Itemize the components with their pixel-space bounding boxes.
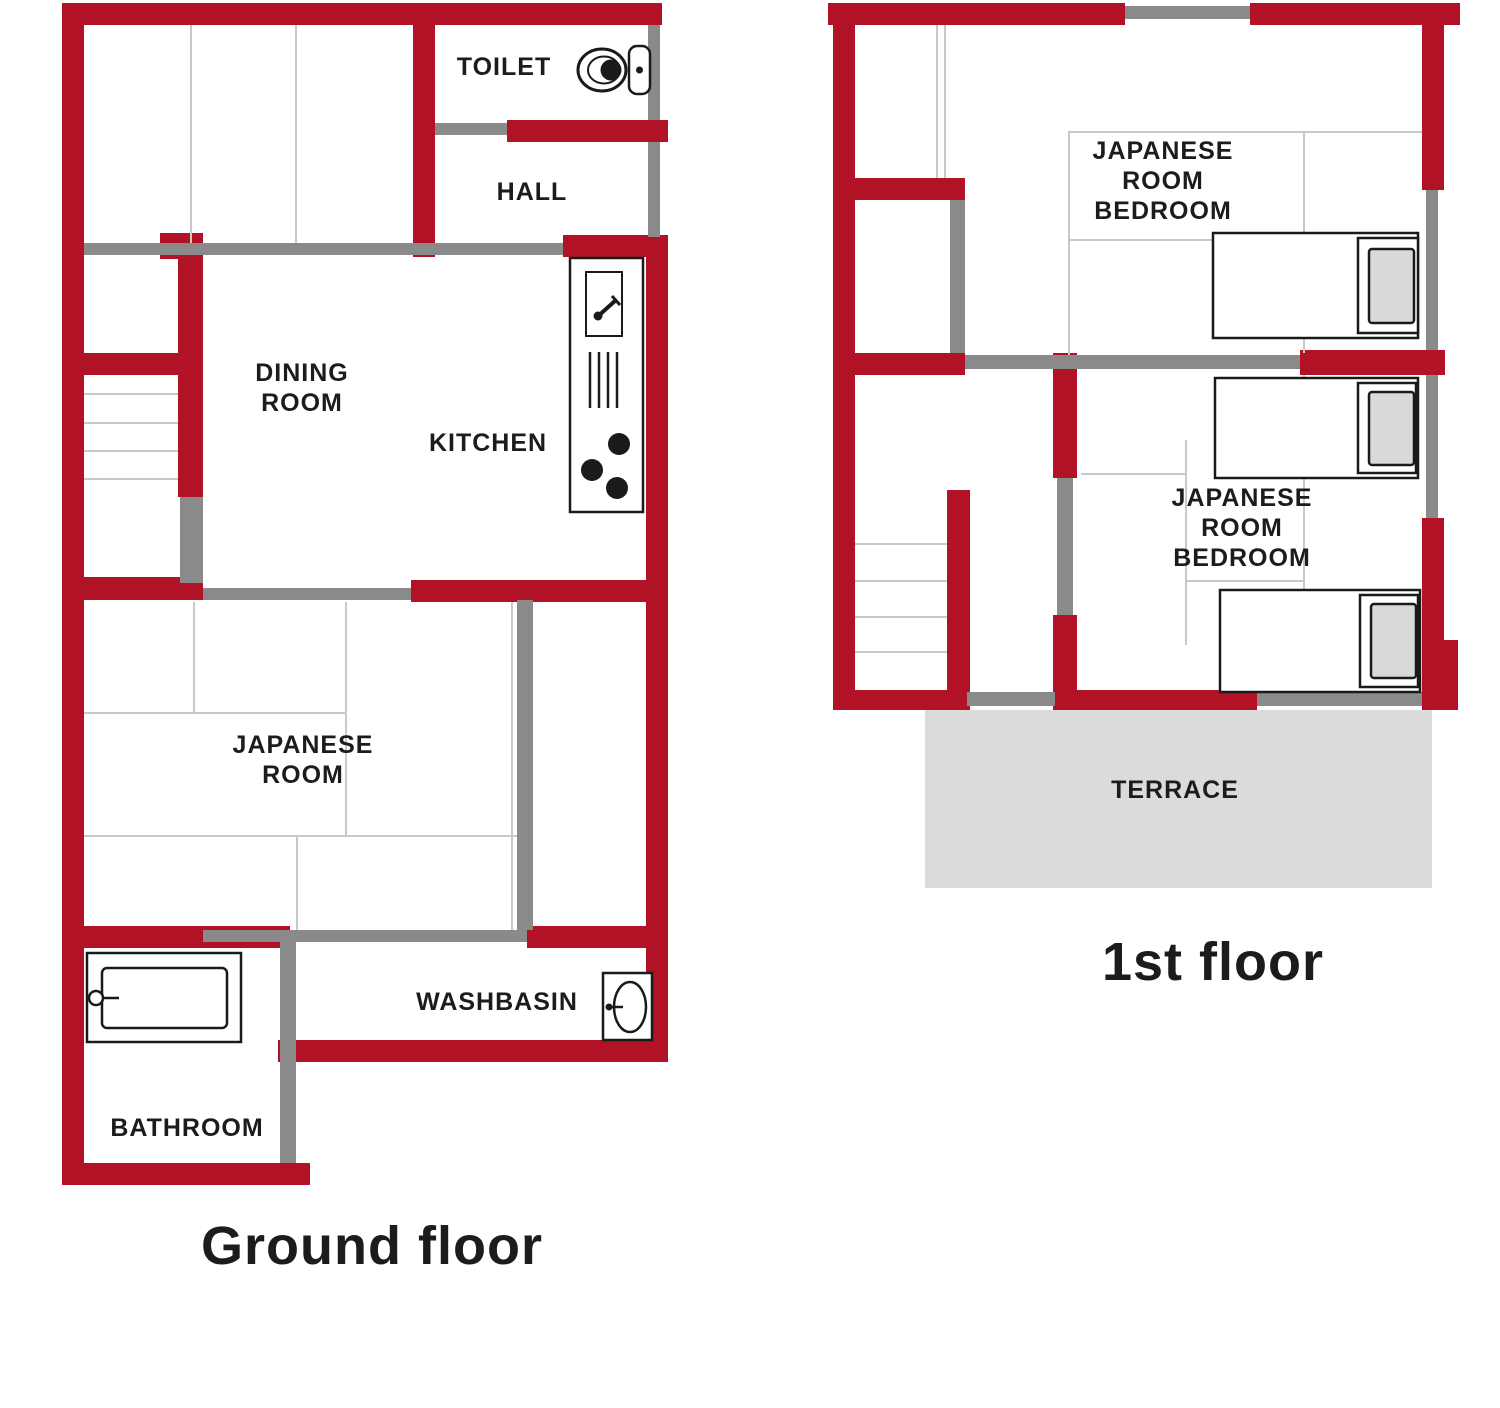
wall-segment	[178, 237, 203, 497]
partition-segment	[1057, 478, 1073, 615]
room-label-hall: HALL	[497, 177, 568, 207]
partition-segment	[203, 588, 411, 600]
stair-tread	[855, 580, 947, 582]
wall-segment	[828, 3, 1125, 25]
tatami-line	[296, 837, 298, 930]
wall-segment	[413, 25, 435, 257]
bed-icon	[1213, 376, 1421, 481]
stair-tread	[84, 450, 178, 452]
washbasin-icon	[601, 971, 655, 1043]
wall-segment	[833, 353, 965, 375]
partition-segment	[965, 355, 1300, 369]
room-label-bedroom-top: JAPANESE ROOM BEDROOM	[1093, 136, 1234, 226]
room-label-terrace: TERRACE	[1111, 775, 1239, 805]
bathtub-icon	[85, 951, 245, 1046]
partition-segment	[950, 200, 965, 353]
stair-tread	[855, 616, 947, 618]
tatami-line	[295, 25, 297, 243]
room-label-bedroom-bottom: JAPANESE ROOM BEDROOM	[1172, 483, 1313, 573]
stair-tread	[855, 651, 947, 653]
wall-segment	[278, 1040, 668, 1062]
partition-segment	[517, 600, 533, 930]
stair-tread	[84, 393, 178, 395]
room-label-dining-room: DINING ROOM	[255, 358, 349, 418]
tatami-line	[190, 25, 192, 243]
wall-segment	[62, 3, 662, 25]
toilet-icon	[575, 42, 653, 98]
room-label-japanese-room: JAPANESE ROOM	[233, 730, 374, 790]
stair-tread	[84, 478, 178, 480]
stair-tread	[84, 422, 178, 424]
stair-tread	[855, 543, 947, 545]
wall-segment	[833, 178, 965, 200]
wall-segment	[833, 690, 970, 710]
ground-floor-caption: Ground floor	[201, 1215, 543, 1277]
window-segment	[1426, 375, 1438, 518]
window-segment	[648, 142, 660, 237]
partition-segment	[280, 942, 296, 1163]
room-label-kitchen: KITCHEN	[429, 428, 547, 458]
wall-segment	[1300, 350, 1445, 375]
tatami-line	[345, 602, 347, 835]
wall-segment	[411, 580, 668, 602]
tatami-line	[1185, 580, 1303, 582]
tatami-line	[84, 835, 517, 837]
bed-icon	[1211, 231, 1421, 341]
room-label-bathroom: BATHROOM	[110, 1113, 263, 1143]
window-segment	[1125, 6, 1250, 19]
wall-segment	[1438, 640, 1458, 710]
window-segment	[1426, 190, 1438, 350]
partition-segment	[84, 243, 563, 255]
room-label-washbasin: WASHBASIN	[416, 987, 578, 1017]
tatami-line	[1068, 239, 1213, 241]
kitchen-counter-icon	[568, 256, 646, 516]
wall-segment	[527, 926, 668, 948]
wall-segment	[947, 490, 970, 710]
floorplan-canvas: TOILET HALL DINING ROOM KITCHEN JAPANESE…	[0, 0, 1500, 1408]
wall-segment	[62, 1163, 310, 1185]
wall-segment	[1422, 3, 1444, 190]
tatami-line	[511, 602, 513, 930]
partition-segment	[967, 692, 1055, 706]
tatami-line	[1081, 473, 1185, 475]
partition-segment	[203, 930, 527, 942]
tatami-line	[1068, 131, 1070, 355]
wall-segment	[507, 120, 668, 142]
tatami-line	[944, 25, 946, 178]
tatami-line	[936, 25, 938, 178]
room-label-toilet: TOILET	[457, 52, 551, 82]
partition-segment	[435, 123, 507, 135]
bed-icon	[1218, 588, 1423, 695]
tatami-line	[1068, 131, 1422, 133]
tatami-line	[84, 712, 345, 714]
wall-segment	[62, 353, 180, 375]
partition-segment	[180, 497, 203, 583]
first-floor-caption: 1st floor	[1102, 931, 1324, 993]
tatami-line	[193, 602, 195, 712]
wall-segment	[1053, 353, 1077, 478]
